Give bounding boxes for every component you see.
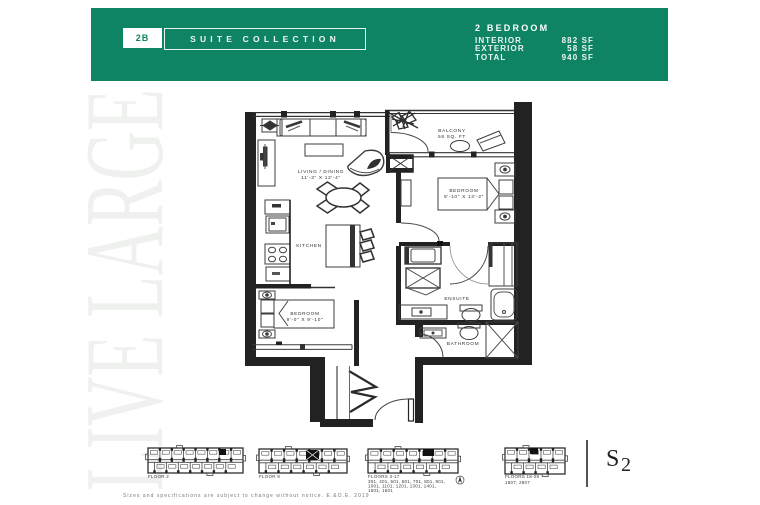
svg-text:FLOORS 18-29: FLOORS 18-29	[505, 474, 540, 479]
svg-text:KITCHEN: KITCHEN	[296, 243, 322, 249]
svg-text:LIVE LARGE: LIVE LARGE	[63, 89, 187, 491]
svg-text:2: 2	[621, 454, 631, 476]
svg-text:LIVING / DINING: LIVING / DINING	[298, 169, 344, 175]
svg-text:BATHROOM: BATHROOM	[447, 341, 480, 347]
svg-text:58 SQ. FT: 58 SQ. FT	[438, 134, 466, 140]
svg-text:9'-0" X 9'-10": 9'-0" X 9'-10"	[287, 317, 324, 323]
svg-text:ENSUITE: ENSUITE	[444, 296, 469, 302]
svg-text:Sizes and specifications are s: Sizes and specifications are subject to …	[123, 493, 370, 499]
svg-text:S: S	[606, 446, 619, 472]
svg-text:FLOOR 9: FLOOR 9	[259, 474, 280, 479]
svg-text:1501, 1601: 1501, 1601	[368, 488, 393, 493]
svg-text:BALCONY: BALCONY	[438, 128, 466, 134]
svg-text:BEDROOM: BEDROOM	[290, 311, 319, 317]
svg-text:11'-3" X 13'-4": 11'-3" X 13'-4"	[301, 175, 341, 181]
svg-text:BEDROOM: BEDROOM	[449, 188, 478, 194]
svg-text:9'-10" X 13'-2": 9'-10" X 13'-2"	[444, 194, 484, 200]
svg-text:1807, 2807: 1807, 2807	[505, 480, 530, 485]
svg-text:FLOOR 2: FLOOR 2	[148, 474, 169, 479]
